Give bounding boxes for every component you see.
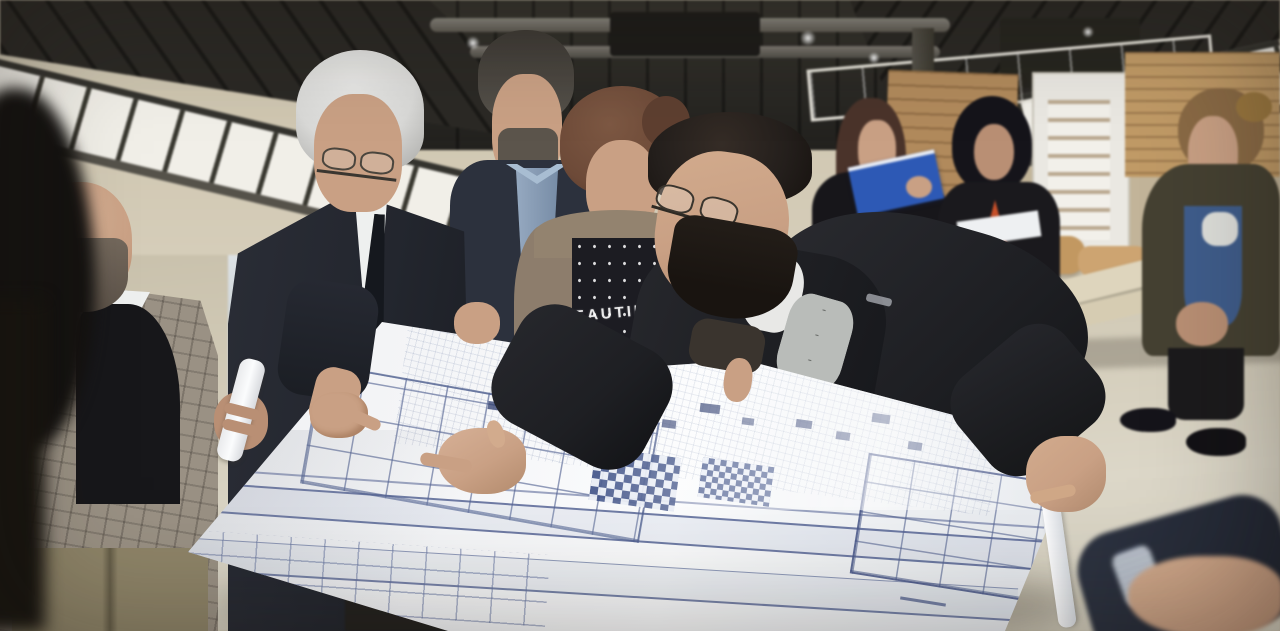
legs <box>1168 348 1244 420</box>
ceiling-lamp <box>466 36 480 50</box>
hand <box>906 176 932 198</box>
out-of-focus-figure-left-lower <box>0 300 45 631</box>
shoe-2 <box>1186 428 1246 456</box>
hand-on-paper-corner <box>454 302 500 344</box>
ceiling-lamp-2 <box>800 30 816 46</box>
hair-bun <box>1236 92 1272 122</box>
clasped-hands <box>1176 302 1228 346</box>
face <box>974 124 1014 180</box>
ceiling-lamp-4 <box>1082 26 1094 38</box>
shoe <box>1120 408 1176 432</box>
ceiling-lamp-3 <box>868 52 880 64</box>
factory-photo-scene: EAUTIF <box>0 0 1280 631</box>
tee <box>1202 212 1238 246</box>
ceiling-vent <box>610 12 760 56</box>
blurred-hand <box>1128 556 1280 631</box>
